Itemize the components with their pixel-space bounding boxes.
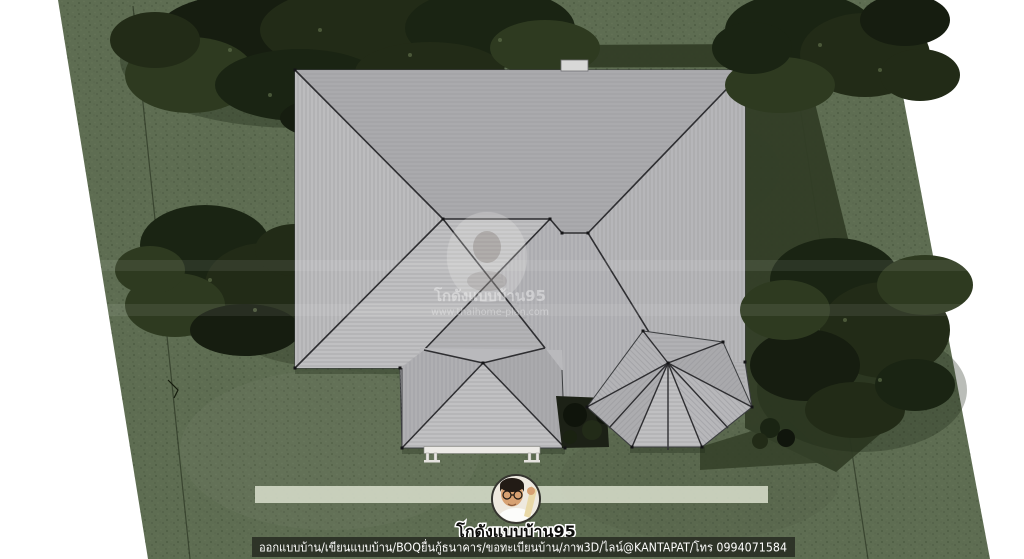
render-canvas: โกดังแบบบ้าน95 www.thaihome-plan.com โกด… <box>0 0 1024 559</box>
watermark-title: โกดังแบบบ้าน95 <box>433 286 546 305</box>
caption-bar: ออกแบบบ้าน/เขียนแบบบ้าน/BOQยื่นกู้ธนาคาร… <box>252 537 795 557</box>
site-plan-render: โกดังแบบบ้าน95 www.thaihome-plan.com โกด… <box>0 0 1024 559</box>
chimney <box>561 60 588 71</box>
caption-text: ออกแบบบ้าน/เขียนแบบบ้าน/BOQยื่นกู้ธนาคาร… <box>259 539 787 556</box>
watermark-url: www.thaihome-plan.com <box>431 307 549 318</box>
